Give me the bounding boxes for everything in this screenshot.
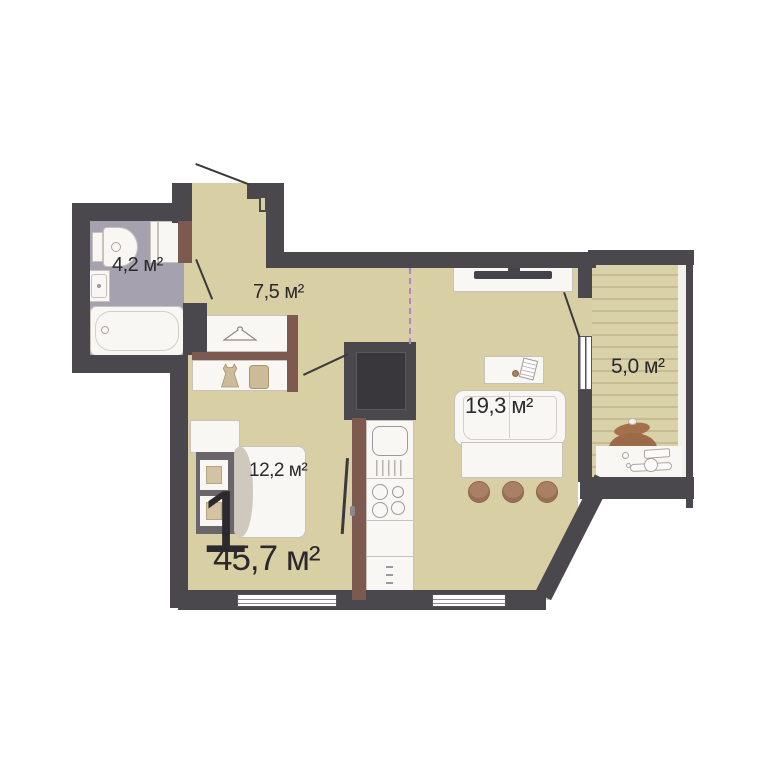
- floor-plan: 4,2 м² 7,5 м² 12,2 м² 19,3 м² 5,0 м² 1 4…: [0, 0, 768, 768]
- bedroom-area-label: 12,2 м²: [249, 461, 307, 480]
- balcony-door-threshold: [578, 296, 592, 338]
- window-bedroom: [237, 594, 337, 607]
- wardrobe-bottom-section: [192, 360, 288, 391]
- balcony-area-label: 5,0 м²: [611, 356, 664, 377]
- sink-drain: [97, 284, 101, 288]
- entry-door-frame: [259, 196, 267, 212]
- wall-balcony-partition-lower: [578, 388, 592, 482]
- dining-table: [461, 442, 563, 478]
- cabinet-handle: [386, 566, 393, 568]
- stove-burner: [372, 502, 388, 518]
- hanger-icon: [223, 326, 257, 342]
- stove-burner: [392, 486, 404, 498]
- kitchen-sink-drainboard: [376, 460, 404, 476]
- stool: [468, 481, 490, 503]
- bicycle-seat: [644, 448, 671, 459]
- balcony-window-door: [578, 336, 592, 390]
- kitchen-divider: [366, 520, 414, 521]
- stove-burner: [372, 484, 388, 500]
- wardrobe-divider: [192, 352, 298, 360]
- partition-bathroom-right: [178, 221, 192, 263]
- toilet-tank: [92, 232, 103, 262]
- wall-bedroom-left: [170, 355, 188, 608]
- tv-icon: [474, 271, 552, 279]
- bicycle-wheel-icon: [644, 458, 658, 472]
- toilet-drain: [111, 242, 121, 252]
- cabinet-handle: [386, 574, 393, 576]
- ventilation-shaft-inner: [356, 352, 406, 410]
- kitchen-divider: [366, 478, 414, 479]
- wall-bathroom-corner: [183, 303, 207, 355]
- wall-balcony-partition-upper: [578, 266, 592, 298]
- kitchen-divider: [366, 556, 414, 557]
- bag-icon: [249, 365, 269, 389]
- zone-boundary-line: [409, 268, 411, 344]
- wall-bathroom-left: [72, 203, 90, 373]
- bathtub-drain: [101, 326, 109, 334]
- plant-top-dot: [628, 418, 637, 425]
- living-area-label: 19,3 м²: [465, 395, 533, 417]
- bedroom-cabinet: [190, 420, 240, 453]
- wall-entry-left: [172, 183, 192, 223]
- bathroom-area-label: 4,2 м²: [112, 255, 163, 275]
- wall-bathroom-bottom: [72, 355, 182, 373]
- stove-burner: [391, 501, 405, 515]
- bicycle-pedal: [622, 452, 629, 459]
- hallway-area-label: 7,5 м²: [253, 282, 304, 302]
- kitchen-sink-icon: [372, 426, 408, 456]
- stool: [536, 481, 558, 503]
- window-living: [432, 594, 506, 607]
- desk-item: [512, 370, 519, 377]
- wall-top-main: [270, 252, 596, 268]
- total-area-label: 45,7 м²: [213, 541, 320, 576]
- bicycle-pedal: [626, 463, 631, 468]
- cabinet-handle: [386, 582, 393, 584]
- bedroom-door-handle: [350, 506, 355, 516]
- wall-balcony-right-glazing: [686, 250, 693, 508]
- dress-icon: [219, 363, 241, 389]
- stool: [502, 481, 524, 503]
- wall-balcony-top: [588, 250, 694, 265]
